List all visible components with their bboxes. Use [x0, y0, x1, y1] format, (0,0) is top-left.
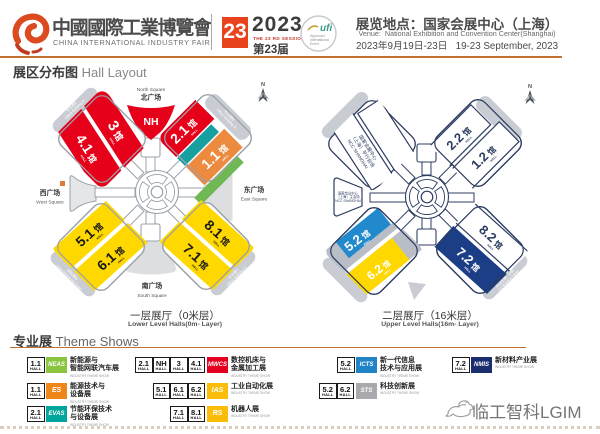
svg-text:NCC·SHANGHAI: NCC·SHANGHAI — [335, 199, 361, 203]
svg-text:East Square: East Square — [241, 197, 268, 203]
svg-text:N: N — [261, 82, 265, 88]
svg-text:N: N — [528, 84, 532, 90]
svg-text:ufi: ufi — [320, 23, 332, 34]
svg-text:NH: NH — [143, 116, 158, 128]
svg-text:Event: Event — [310, 42, 319, 46]
svg-text:东广场: 东广场 — [244, 185, 265, 194]
svg-text:West Square: West Square — [36, 200, 64, 206]
svg-text:南广场: 南广场 — [142, 281, 163, 290]
svg-text:North Square: North Square — [137, 87, 166, 93]
svg-text:South Square: South Square — [137, 293, 167, 299]
svg-text:北广场: 北广场 — [141, 93, 162, 102]
svg-text:西广场: 西广场 — [40, 188, 61, 197]
